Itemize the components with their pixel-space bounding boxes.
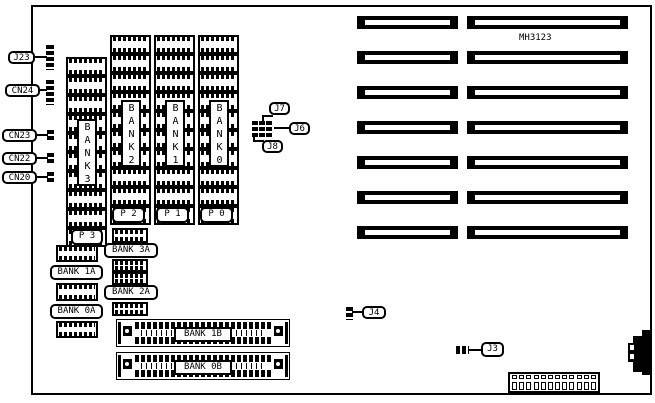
jumper-block-j7	[259, 121, 265, 137]
power-pin	[512, 382, 517, 390]
power-connector	[508, 372, 600, 393]
dip-chip	[110, 73, 151, 92]
power-pin	[534, 382, 539, 390]
isa-slot-short	[357, 226, 458, 239]
power-pin	[569, 375, 574, 379]
dip-chip	[154, 168, 195, 187]
isa-slot-long	[467, 226, 628, 239]
simm-latch	[274, 326, 283, 336]
port-label-p3: P 3	[71, 229, 103, 245]
simm-end	[285, 355, 288, 377]
isa-slot-long	[467, 51, 628, 64]
isa-slot-long	[467, 121, 628, 134]
simm-socket-bank0b: BANK 0B	[116, 352, 290, 380]
power-pin	[526, 382, 531, 390]
isa-slot-short	[357, 121, 458, 134]
dip-chip	[56, 245, 98, 262]
power-pin	[577, 375, 582, 379]
dip-chip	[198, 187, 239, 206]
simm-end	[118, 355, 121, 377]
bank2-label: BANK2	[121, 100, 141, 167]
simm-end	[285, 322, 288, 344]
isa-slot-long	[467, 191, 628, 204]
bank3-label: BANK3	[77, 119, 97, 186]
dip-chip	[66, 57, 107, 76]
power-pin	[548, 382, 553, 390]
connector-label-j23: J23	[8, 51, 35, 64]
isa-slot-short	[357, 191, 458, 204]
dip-chip	[154, 187, 195, 206]
bank-1a-label: BANK 1A	[50, 265, 103, 280]
dip-chip	[154, 54, 195, 73]
power-pin-row	[512, 375, 596, 379]
connector-pins-cn24	[46, 80, 54, 105]
simm-socket-bank1b: BANK 1B	[116, 319, 290, 347]
dip-chip	[66, 95, 107, 114]
power-pin	[548, 375, 553, 379]
power-pin	[541, 382, 546, 390]
dip-chip	[66, 190, 107, 209]
isa-slot-row	[357, 156, 628, 169]
connector-pins-cn22	[47, 153, 54, 164]
callout-line	[274, 127, 290, 129]
power-pin	[555, 375, 560, 379]
isa-slot-row	[357, 51, 628, 64]
power-pin	[591, 375, 596, 379]
isa-slot-row	[357, 121, 628, 134]
dip-chip	[154, 73, 195, 92]
isa-slot-short	[357, 51, 458, 64]
connector-pins-cn23	[47, 130, 54, 141]
jumper-label-j4: J4	[362, 306, 386, 319]
connector-label-cn24: CN24	[5, 84, 40, 97]
power-pin	[577, 382, 582, 390]
dip-chip	[112, 259, 148, 272]
bank-3a-label: BANK 3A	[104, 243, 158, 258]
port-label-p2: P 2	[112, 207, 145, 223]
isa-slot-short	[357, 156, 458, 169]
dip-chip	[56, 283, 98, 301]
isa-slot-long	[467, 86, 628, 99]
bank0-label: BANK0	[209, 100, 229, 167]
power-pin	[526, 375, 531, 379]
dip-chip	[110, 168, 151, 187]
bank1-label: BANK1	[165, 100, 185, 167]
power-pin	[569, 382, 574, 390]
connector-pins-cn20	[47, 172, 54, 183]
isa-slot-row	[357, 86, 628, 99]
power-pin	[541, 375, 546, 379]
keyboard-connector	[642, 330, 652, 375]
simm-latch	[123, 326, 132, 336]
simm-latch	[274, 359, 283, 369]
isa-slot-long	[467, 156, 628, 169]
bank-0b-label: BANK 0B	[174, 360, 232, 375]
power-pin	[534, 375, 539, 379]
connector-label-cn20: CN20	[2, 171, 37, 184]
callout-line	[33, 56, 47, 58]
keyboard-connector-pin-hole	[630, 345, 634, 350]
bank-1b-label: BANK 1B	[174, 327, 232, 342]
power-pin-row	[512, 382, 596, 390]
power-pin	[512, 375, 517, 379]
jumper-block-j8	[252, 121, 258, 137]
dip-chip	[110, 54, 151, 73]
connector-label-cn23: CN23	[2, 129, 37, 142]
isa-slot-short	[357, 16, 458, 29]
dip-chip	[112, 272, 148, 285]
keyboard-connector-pin-hole	[630, 354, 634, 359]
dip-chip	[112, 228, 148, 243]
jumper-block-j6	[266, 121, 272, 137]
isa-slot-row	[357, 226, 628, 239]
callout-line	[262, 115, 273, 117]
bank-0a-label: BANK 0A	[50, 304, 103, 319]
power-pin	[584, 382, 589, 390]
dip-chip	[66, 76, 107, 95]
dip-chip	[198, 168, 239, 187]
power-pin	[562, 375, 567, 379]
jumper-label-j7: J7	[269, 102, 290, 115]
power-pin	[519, 382, 524, 390]
dip-chip	[110, 35, 151, 54]
connector-label-cn22: CN22	[2, 152, 37, 165]
power-pin	[562, 382, 567, 390]
callout-line	[468, 349, 482, 351]
isa-slot-row	[357, 191, 628, 204]
dip-chip	[154, 35, 195, 54]
expansion-slot-area	[357, 16, 628, 261]
power-pin	[591, 382, 596, 390]
bank-2a-label: BANK 2A	[104, 285, 158, 300]
jumper-label-j8: J8	[262, 140, 283, 153]
dip-chip	[198, 73, 239, 92]
power-pin	[519, 375, 524, 379]
dip-chip	[66, 209, 107, 228]
isa-slot-short	[357, 86, 458, 99]
jumper-label-j6: J6	[289, 122, 310, 135]
dip-chip	[56, 321, 98, 338]
part-number-label: MH3123	[519, 33, 552, 43]
jumper-block-j4	[346, 307, 353, 320]
simm-latch	[123, 359, 132, 369]
jumper-label-j3: J3	[481, 342, 504, 357]
dip-chip	[198, 35, 239, 54]
power-pin	[555, 382, 560, 390]
dip-chip	[198, 54, 239, 73]
isa-slot-long	[467, 16, 628, 29]
isa-slot-row	[357, 16, 628, 29]
motherboard-diagram: J23 CN24 CN23 CN22 CN20 BANK3 BANK2 BANK…	[0, 0, 655, 403]
dip-chip	[110, 187, 151, 206]
port-label-p1: P 1	[156, 207, 189, 223]
connector-pins-j23	[46, 45, 54, 70]
power-pin	[584, 375, 589, 379]
dip-chip	[112, 302, 148, 316]
port-label-p0: P 0	[200, 207, 233, 223]
simm-end	[118, 322, 121, 344]
